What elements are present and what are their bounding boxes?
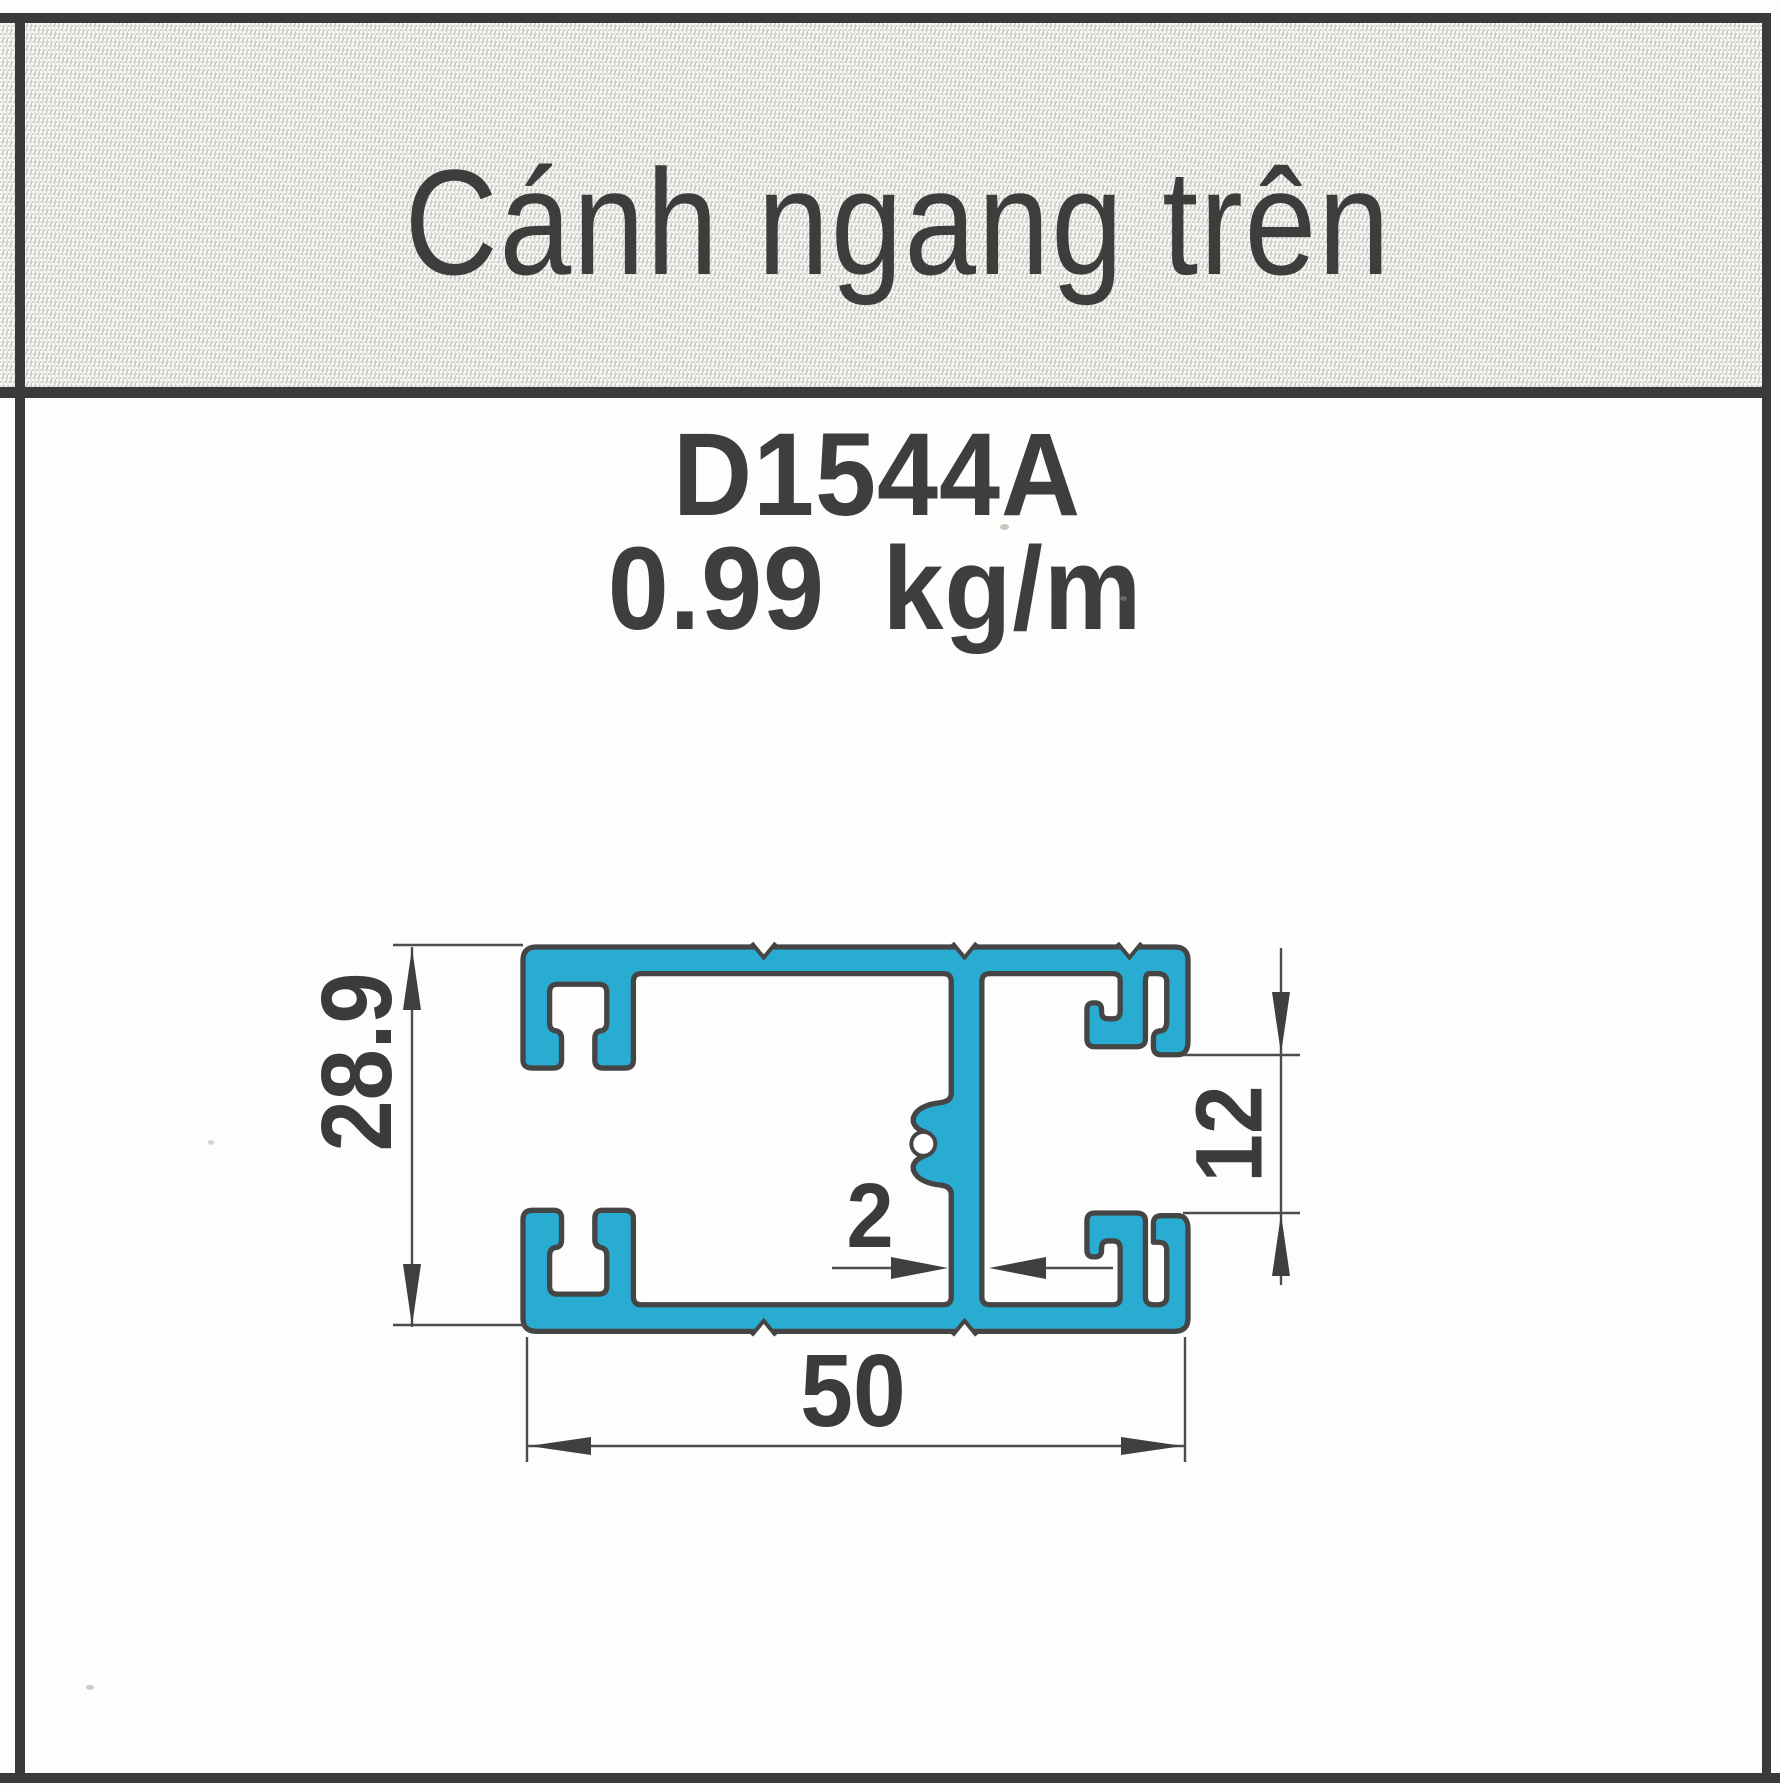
- arrow-up-icon: [1272, 1214, 1290, 1276]
- arrow-down-icon: [403, 1264, 421, 1326]
- catalog-page: Cánh ngang trên D1544A 0.99 kg/m: [0, 0, 1780, 1785]
- arrow-left-icon: [529, 1437, 591, 1455]
- profile-drawing: 28.9 12 2 50: [0, 0, 1780, 1785]
- dimension-width-label: 50: [800, 1332, 905, 1448]
- arrow-right-icon: [1121, 1437, 1183, 1455]
- arrow-left-icon: [989, 1257, 1046, 1279]
- arrow-down-icon: [1272, 992, 1290, 1054]
- profile-cross-section: [523, 943, 1188, 1335]
- dimension-wall-label: 2: [846, 1164, 893, 1267]
- dimension-height-label: 28.9: [301, 972, 412, 1151]
- arrow-right-icon: [891, 1257, 948, 1279]
- dimension-right-opening-label: 12: [1176, 1085, 1282, 1182]
- profile-body: [523, 947, 1188, 1331]
- web-notch: [911, 1132, 935, 1156]
